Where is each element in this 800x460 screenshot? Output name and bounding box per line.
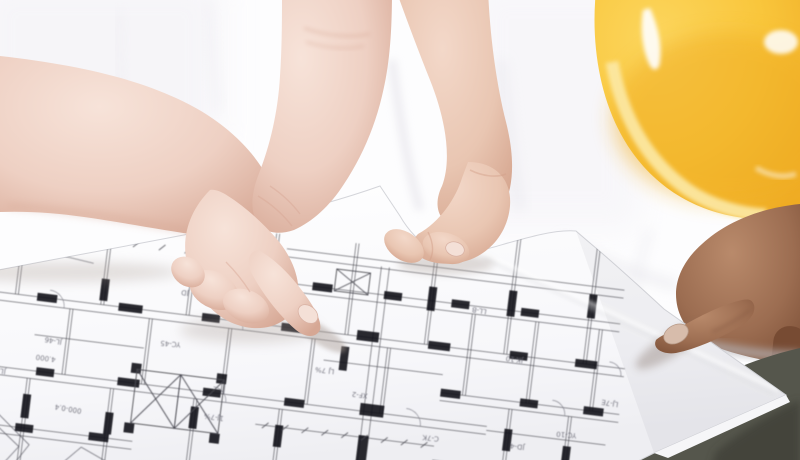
wall-segment xyxy=(131,363,142,374)
hard-hat-highlight xyxy=(764,30,798,54)
photo-canvas: JL-464.000YC-453-7.10LJ 7%JDC-7K000-0.4J… xyxy=(0,0,800,460)
wall-segment xyxy=(209,433,220,444)
wall-segment xyxy=(123,422,134,433)
plan-label: JD xyxy=(181,288,191,297)
photo-scene: JL-464.000YC-453-7.10LJ 7%JDC-7K000-0.4J… xyxy=(0,0,800,460)
